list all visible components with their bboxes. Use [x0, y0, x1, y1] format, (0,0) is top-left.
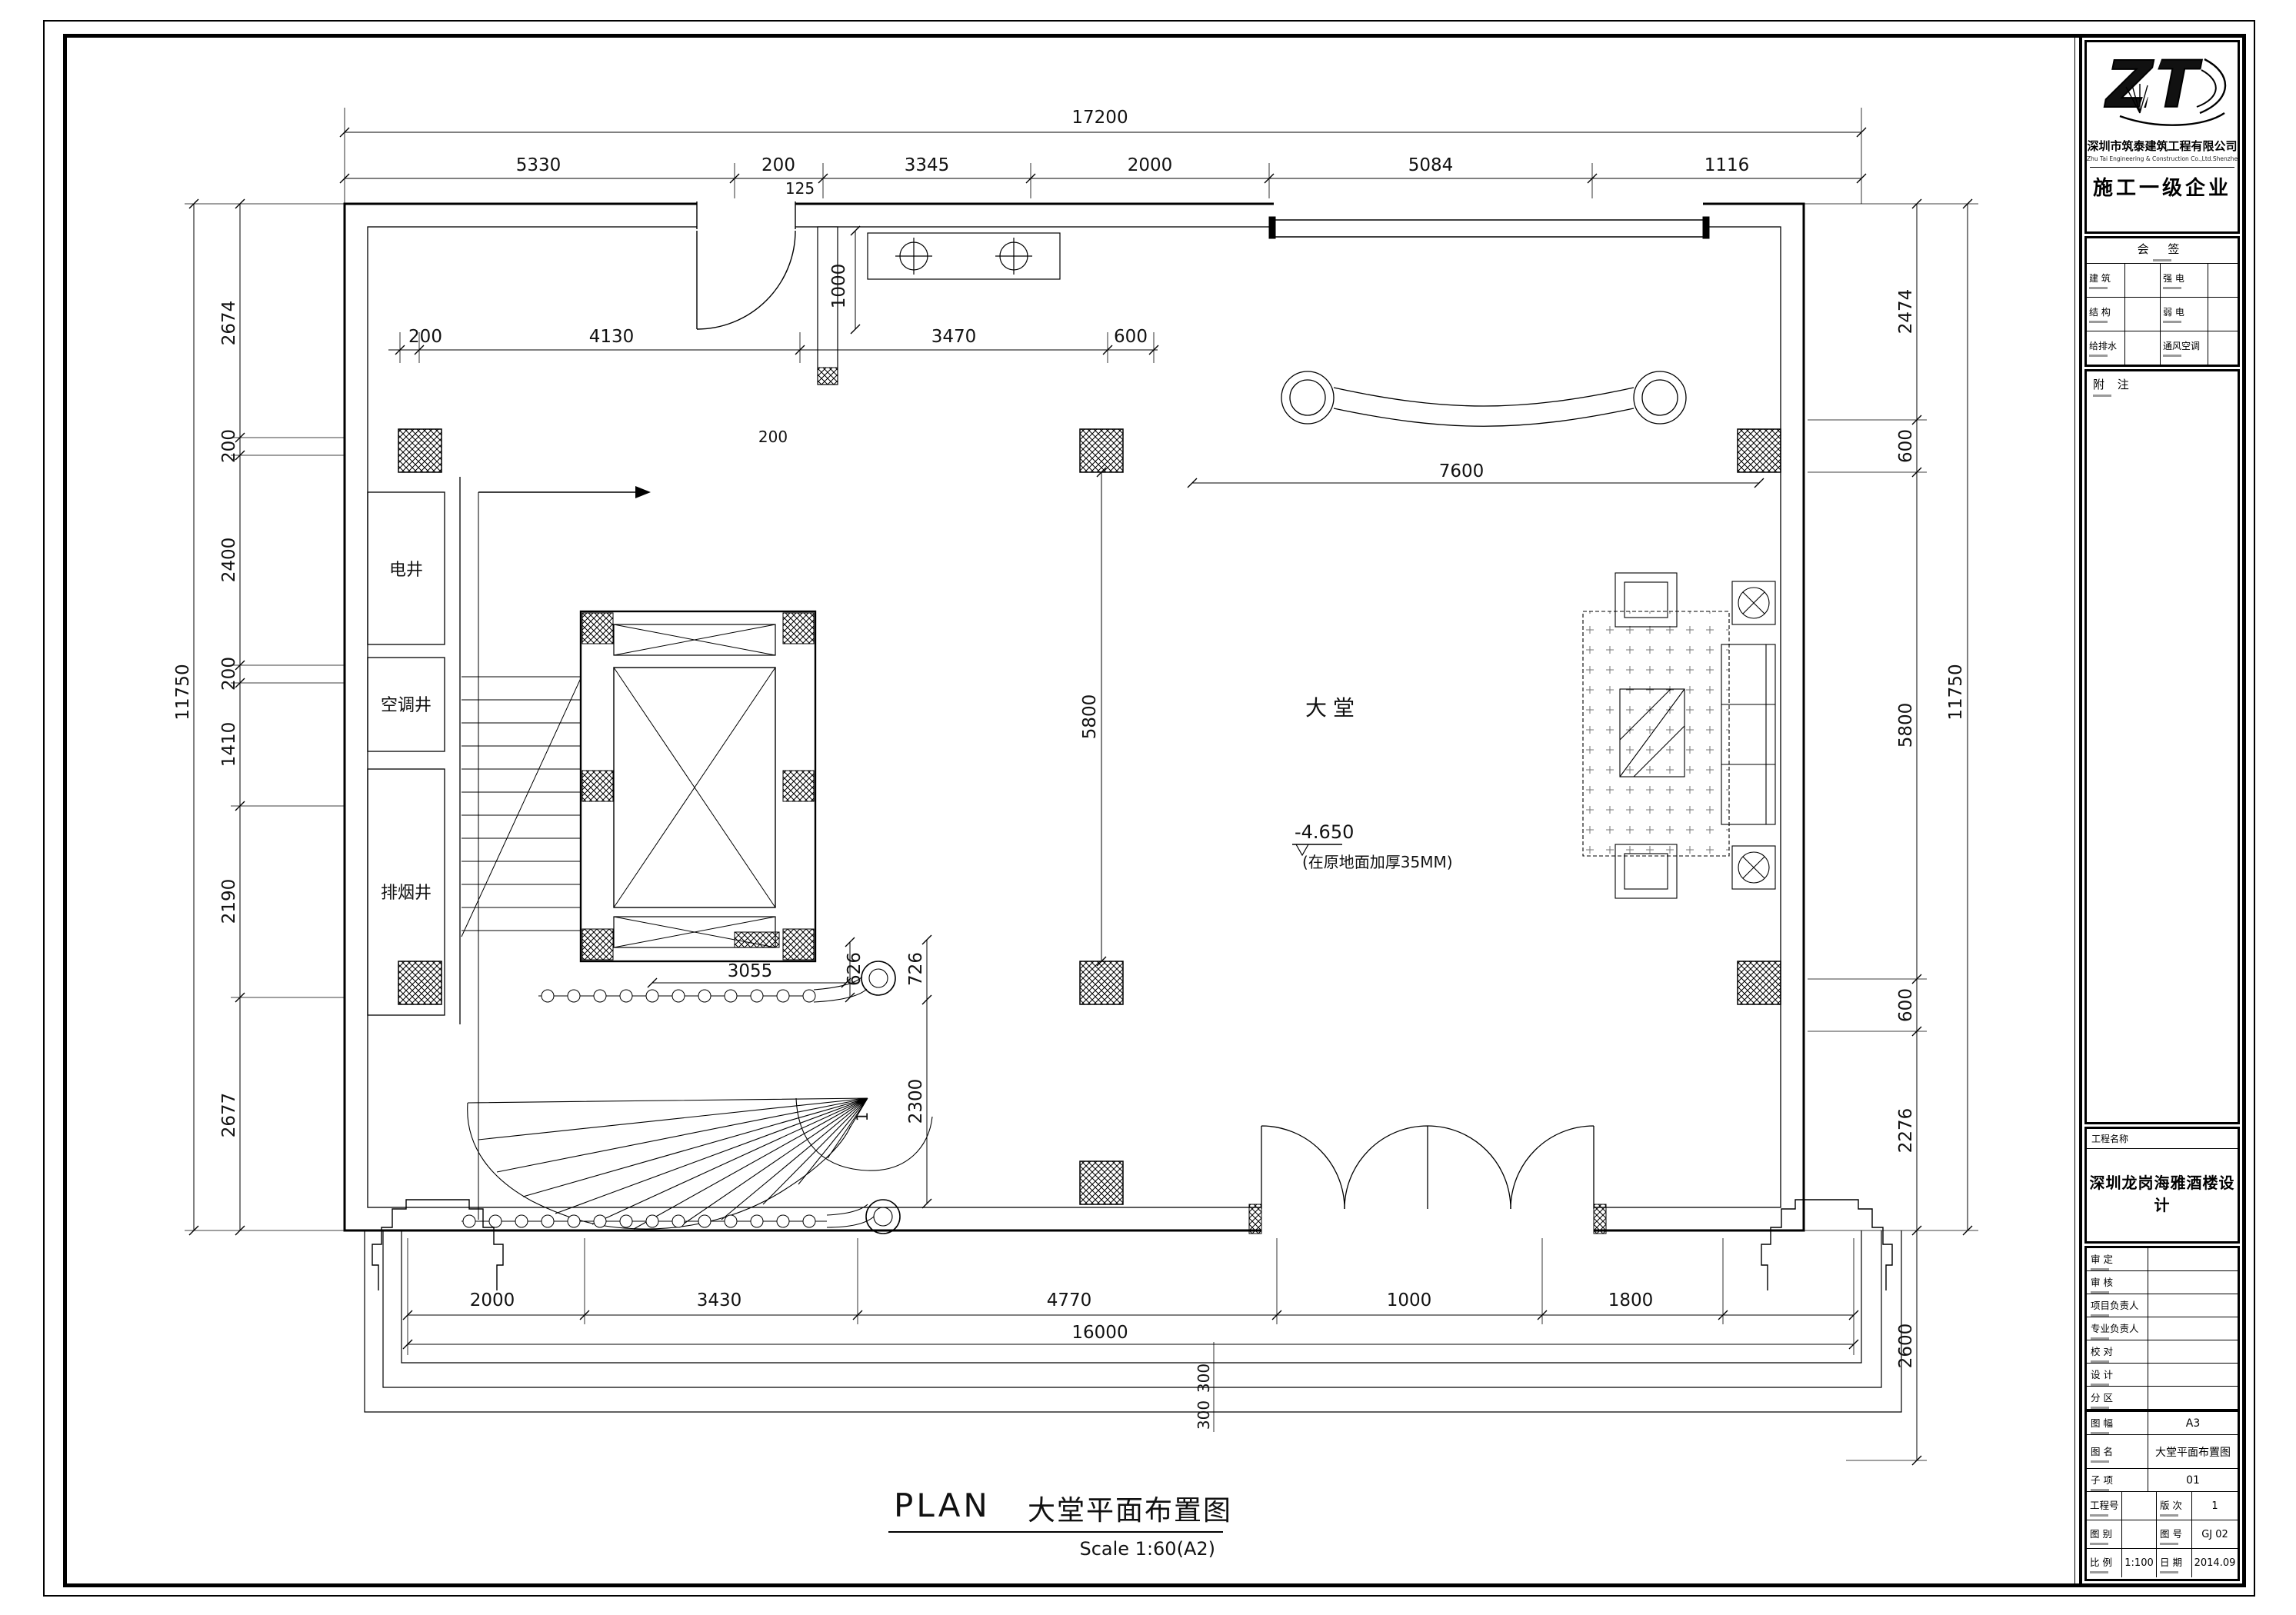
dim-label: 1000	[829, 264, 849, 309]
field-project-leader-value	[2148, 1294, 2238, 1317]
dim-label: 1116	[1705, 155, 1750, 175]
dim-label: 1800	[1608, 1290, 1654, 1310]
field-proofread-value	[2148, 1340, 2238, 1363]
sofa-group	[1583, 573, 1775, 898]
carpet	[1583, 611, 1729, 856]
field-designer-value	[2148, 1364, 2238, 1386]
field-discipline-leader: 专业负责人	[2087, 1317, 2148, 1340]
countersign-table: 会 签 建 筑 强 电 结 构 弱 电 给排水 通风空调	[2084, 236, 2240, 367]
dim-label: 5800	[1896, 703, 1916, 748]
subitem-value: 01	[2148, 1469, 2238, 1491]
field-proofread: 校 对	[2087, 1340, 2148, 1363]
caption-title-cn: 大堂平面布置图	[1028, 1495, 1232, 1527]
company-grade: 施工一级企业	[2087, 172, 2238, 201]
level-note: (在原地面加厚35MM)	[1302, 853, 1453, 871]
dim-label: 2276	[1896, 1108, 1916, 1154]
cs-label: 给排水	[2087, 331, 2125, 365]
dim-label: 200	[408, 327, 442, 347]
dim-label: 3430	[697, 1290, 742, 1310]
room-label: 大堂	[1305, 695, 1361, 721]
dim-label: 3345	[905, 155, 950, 175]
dim-label: 200	[758, 428, 788, 446]
dim-label: 600	[1114, 327, 1148, 347]
drawing-no-value: GJ 02	[2192, 1520, 2238, 1548]
field-scale: 比 例	[2087, 1549, 2122, 1577]
drawing-title-value: 大堂平面布置图	[2148, 1435, 2238, 1468]
dim-label: 16000	[1071, 1323, 1128, 1343]
countersign-subcaption	[2153, 259, 2171, 261]
dim-label: 11750	[1946, 664, 1966, 720]
dim-label: 17200	[1071, 108, 1128, 128]
field-project-no: 工程号	[2087, 1492, 2122, 1520]
shaft-label-electric: 电井	[389, 561, 423, 580]
cs-label: 强 电	[2161, 264, 2208, 298]
scale-value: 1:100	[2122, 1549, 2157, 1577]
level-value: -4.650	[1295, 821, 1354, 843]
dim-label: 2000	[470, 1290, 515, 1310]
dim-label: 300	[1195, 1400, 1213, 1430]
remarks-subcaption	[2093, 395, 2111, 397]
dim-label: 600	[1896, 988, 1916, 1022]
dim-label: 2000	[1128, 155, 1173, 175]
fields-table: 审 定 审 核 项目负责人 专业负责人 校 对 设 计 分 区 图 幅A3 图 …	[2084, 1246, 2240, 1581]
cs-label: 通风空调	[2161, 331, 2208, 365]
dim-label: 4770	[1047, 1290, 1092, 1310]
project-label: 工程名称	[2087, 1129, 2238, 1149]
stair-direction-arrow	[635, 486, 651, 498]
dim-label: 300	[1195, 1364, 1213, 1393]
dim-label: 5084	[1408, 155, 1454, 175]
date-value: 2014.09	[2192, 1549, 2238, 1577]
shaft-label-ac: 空调井	[381, 696, 432, 715]
field-date: 日 期	[2157, 1549, 2192, 1577]
field-approved: 审 定	[2087, 1248, 2148, 1270]
stair-straight	[462, 492, 637, 1220]
dim-label: 125	[785, 179, 815, 198]
downlight-symbols	[895, 238, 1032, 275]
lamp-table-top	[1732, 581, 1775, 624]
dim-label: 1410	[219, 722, 239, 768]
cs-blank	[2125, 264, 2161, 298]
project-box: 工程名称 深圳龙岗海雅酒楼设计	[2084, 1127, 2240, 1244]
caption-plan-en: PLAN	[894, 1487, 991, 1524]
company-name-cn: 深圳市筑泰建筑工程有限公司	[2087, 138, 2238, 154]
field-drawing-type: 图 别	[2087, 1520, 2122, 1548]
project-name: 深圳龙岗海雅酒楼设计	[2087, 1170, 2238, 1215]
caption-scale: Scale 1:60(A2)	[1079, 1538, 1215, 1560]
dim-label: 2677	[219, 1093, 239, 1138]
field-designer: 设 计	[2087, 1364, 2148, 1386]
cs-blank	[2208, 264, 2238, 298]
level-mark: -4.650 (在原地面加厚35MM)	[1292, 821, 1453, 871]
field-project-leader: 项目负责人	[2087, 1294, 2148, 1317]
dim-label: 11750	[173, 664, 193, 720]
dim-label: 7600	[1439, 461, 1485, 481]
cs-label: 结 构	[2087, 298, 2125, 331]
stair-curved	[462, 961, 932, 1234]
dim-label: 5800	[1080, 694, 1100, 740]
field-sheet-size: 图 幅	[2087, 1412, 2148, 1434]
reception-counter	[1281, 371, 1686, 426]
cs-label: 建 筑	[2087, 264, 2125, 298]
field-drawing-title: 图 名	[2087, 1435, 2148, 1468]
field-discipline-leader-value	[2148, 1317, 2238, 1340]
revision-value: 1	[2192, 1492, 2238, 1520]
dim-label: 200	[761, 155, 795, 175]
dim-label: 2474	[1896, 289, 1916, 335]
divider	[2090, 167, 2234, 168]
lamp-table-bottom	[1732, 846, 1775, 889]
company-logo: Z T	[2089, 42, 2235, 133]
columns	[398, 429, 1781, 1204]
dim-label: 2300	[906, 1079, 926, 1124]
project-no-value	[2122, 1492, 2157, 1520]
cs-blank	[2125, 298, 2161, 331]
dim-label: 600	[1896, 429, 1916, 463]
dim-label: 2190	[219, 879, 239, 924]
countersign-header: 会 签	[2138, 241, 2188, 257]
field-zone-value	[2148, 1387, 2238, 1409]
floor-plan: 电井 空调井 排烟井	[0, 0, 2296, 1615]
field-approved-value	[2148, 1248, 2238, 1270]
field-checked-value	[2148, 1271, 2238, 1294]
shaft-label-smoke: 排烟井	[381, 884, 432, 903]
field-revision: 版 次	[2157, 1492, 2192, 1520]
cs-blank	[2125, 331, 2161, 365]
drawing-caption: PLAN 大堂平面布置图 Scale 1:60(A2)	[888, 1487, 1232, 1560]
cs-label: 弱 电	[2161, 298, 2208, 331]
dim-label: 2400	[219, 538, 239, 583]
remarks-box: 附 注	[2084, 369, 2240, 1124]
dim-label: 200	[219, 657, 239, 691]
pedestal-left	[372, 1200, 503, 1290]
cs-blank	[2208, 298, 2238, 331]
dim-label: 3055	[728, 961, 773, 981]
dim-label: 726	[906, 952, 926, 986]
company-name-en: Zhu Tai Engineering & Construction Co.,L…	[2087, 155, 2238, 162]
exterior-steps	[365, 1230, 1901, 1412]
dim-label: 4130	[589, 327, 635, 347]
dim-label: 626	[845, 952, 865, 986]
cs-blank	[2208, 331, 2238, 365]
company-header: Z T 深圳市筑泰建筑工程有限公司 Zhu Tai Engineering & …	[2084, 40, 2240, 234]
dim-label: 200	[219, 429, 239, 463]
dim-label: 2600	[1896, 1324, 1916, 1369]
sheet-size-value: A3	[2148, 1412, 2238, 1434]
drawing-sheet: 电井 空调井 排烟井	[0, 0, 2296, 1615]
field-subitem: 子 项	[2087, 1469, 2148, 1491]
remarks-label: 附 注	[2087, 371, 2238, 392]
field-zone: 分 区	[2087, 1387, 2148, 1409]
title-block: Z T 深圳市筑泰建筑工程有限公司 Zhu Tai Engineering & …	[2079, 38, 2242, 1583]
pedestal-right	[1761, 1200, 1892, 1290]
field-checked: 审 核	[2087, 1271, 2148, 1294]
elevator-core	[581, 611, 815, 961]
drawing-type-value	[2122, 1520, 2157, 1548]
service-shafts	[368, 477, 460, 1024]
wall-openings	[697, 192, 1703, 1237]
dim-label: 5330	[516, 155, 562, 175]
svg-text:Z: Z	[2104, 47, 2154, 122]
field-drawing-no: 图 号	[2157, 1520, 2192, 1548]
dim-label: 2674	[219, 301, 239, 346]
dim-label: 3470	[931, 327, 977, 347]
dim-label: 1000	[1387, 1290, 1432, 1310]
dim-label: 1	[853, 1112, 871, 1122]
